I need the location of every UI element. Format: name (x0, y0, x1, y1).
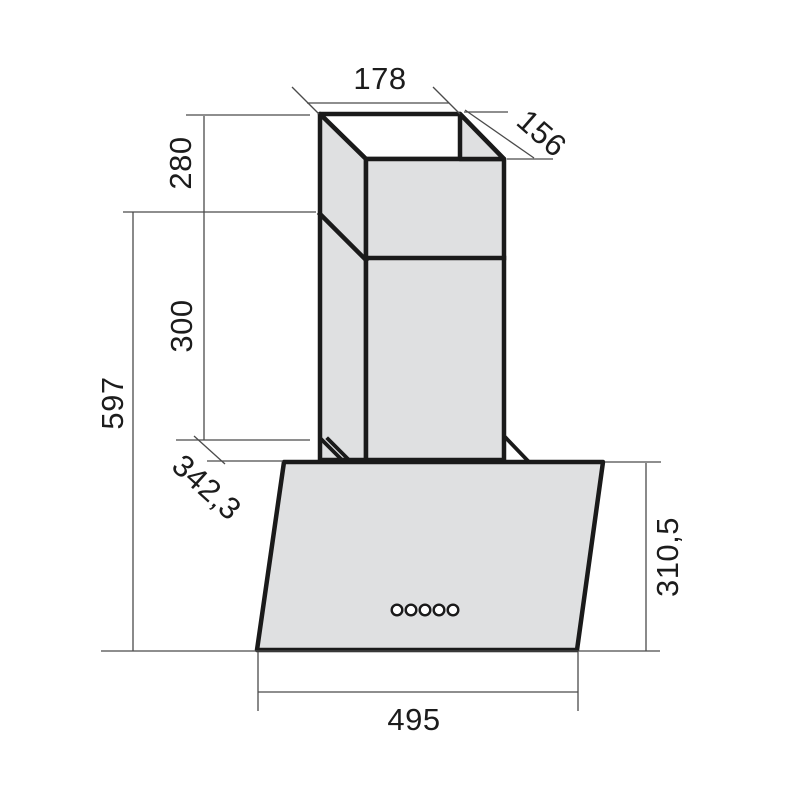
label-chimney-width: 178 (353, 61, 406, 96)
diagram-canvas: 178 156 280 300 597 342,3 310,5 495 (0, 0, 800, 800)
label-upper-chimney-height: 280 (163, 136, 198, 189)
control-button-icon (392, 605, 403, 616)
chimney-left-face (320, 114, 366, 460)
control-button-icon (406, 605, 417, 616)
label-body-depth: 342,3 (165, 447, 248, 527)
control-button-icon (448, 605, 459, 616)
label-overall-height: 597 (95, 376, 130, 429)
label-chimney-depth: 156 (510, 103, 573, 164)
label-body-width: 495 (387, 702, 440, 737)
hood-control-buttons (392, 605, 459, 616)
label-front-panel-height: 310,5 (650, 517, 685, 597)
cooker-hood-dimension-diagram: 178 156 280 300 597 342,3 310,5 495 (0, 0, 800, 800)
chimney-right-face (460, 114, 504, 159)
chimney-front-face (366, 159, 504, 460)
glass-front-panel (257, 462, 603, 650)
control-button-icon (434, 605, 445, 616)
label-lower-chimney-height: 300 (164, 299, 199, 352)
hood-body (257, 462, 603, 650)
dim-tick-chimney-width-left (292, 87, 319, 114)
chimney (320, 114, 528, 461)
mounting-bracket-right (506, 438, 528, 461)
control-button-icon (420, 605, 431, 616)
dim-tick-chimney-width-right (433, 87, 460, 114)
